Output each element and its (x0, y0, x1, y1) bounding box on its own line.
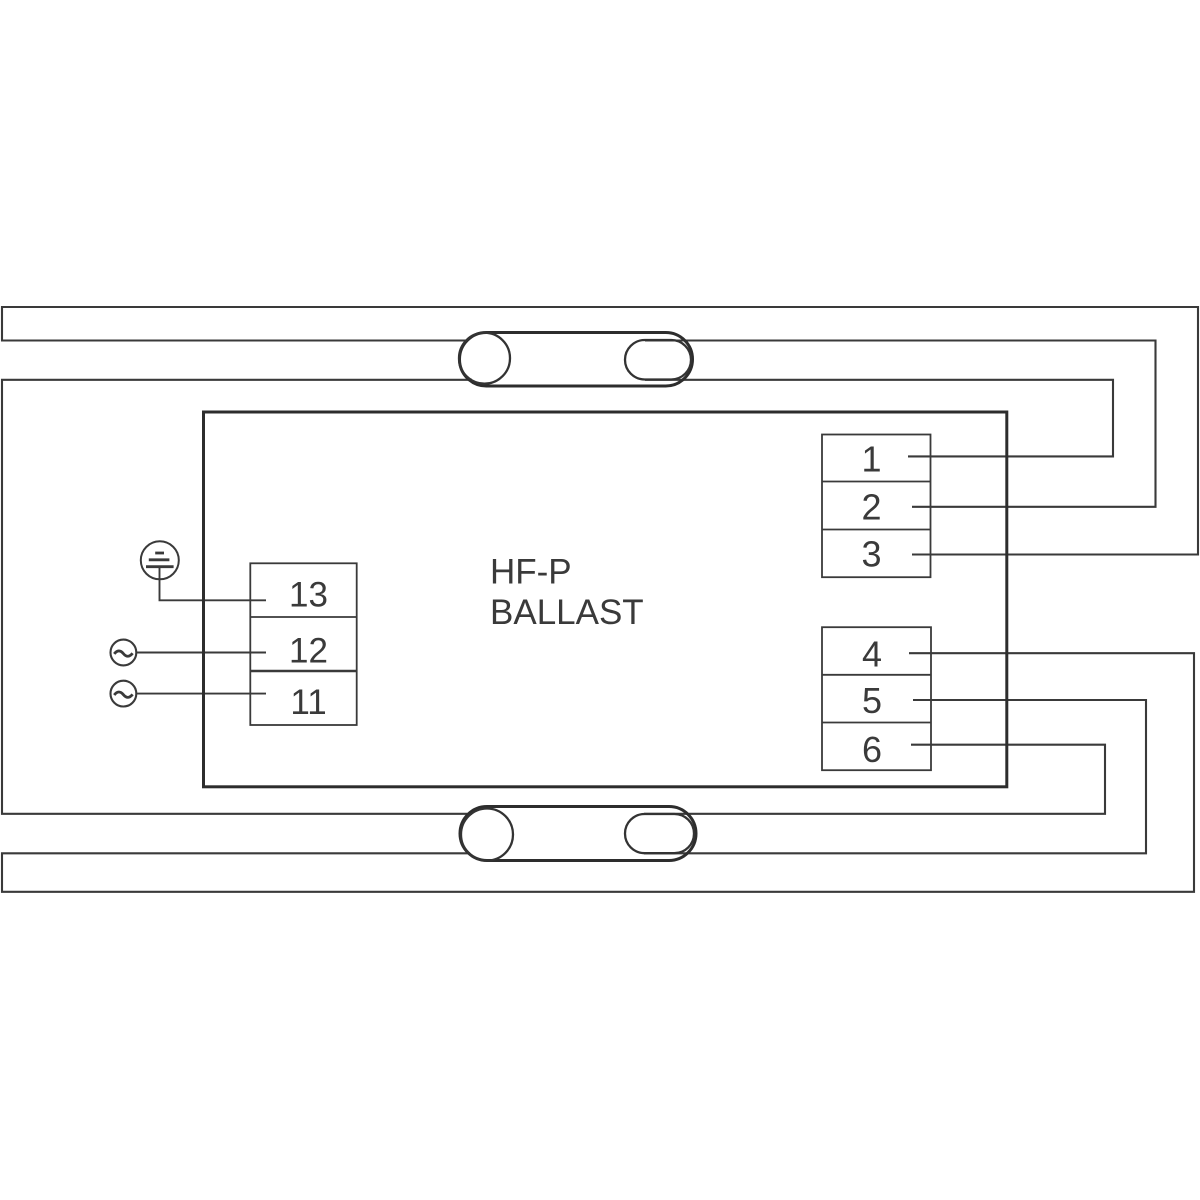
svg-text:HF-P: HF-P (490, 552, 572, 591)
svg-text:5: 5 (862, 680, 882, 721)
svg-text:2: 2 (861, 487, 881, 528)
svg-text:13: 13 (289, 576, 328, 615)
svg-text:BALLAST: BALLAST (490, 593, 644, 632)
svg-text:3: 3 (861, 534, 881, 575)
svg-text:6: 6 (862, 729, 882, 770)
svg-text:1: 1 (861, 439, 881, 480)
svg-text:4: 4 (862, 634, 882, 675)
svg-text:11: 11 (290, 683, 326, 722)
svg-text:12: 12 (289, 632, 328, 671)
